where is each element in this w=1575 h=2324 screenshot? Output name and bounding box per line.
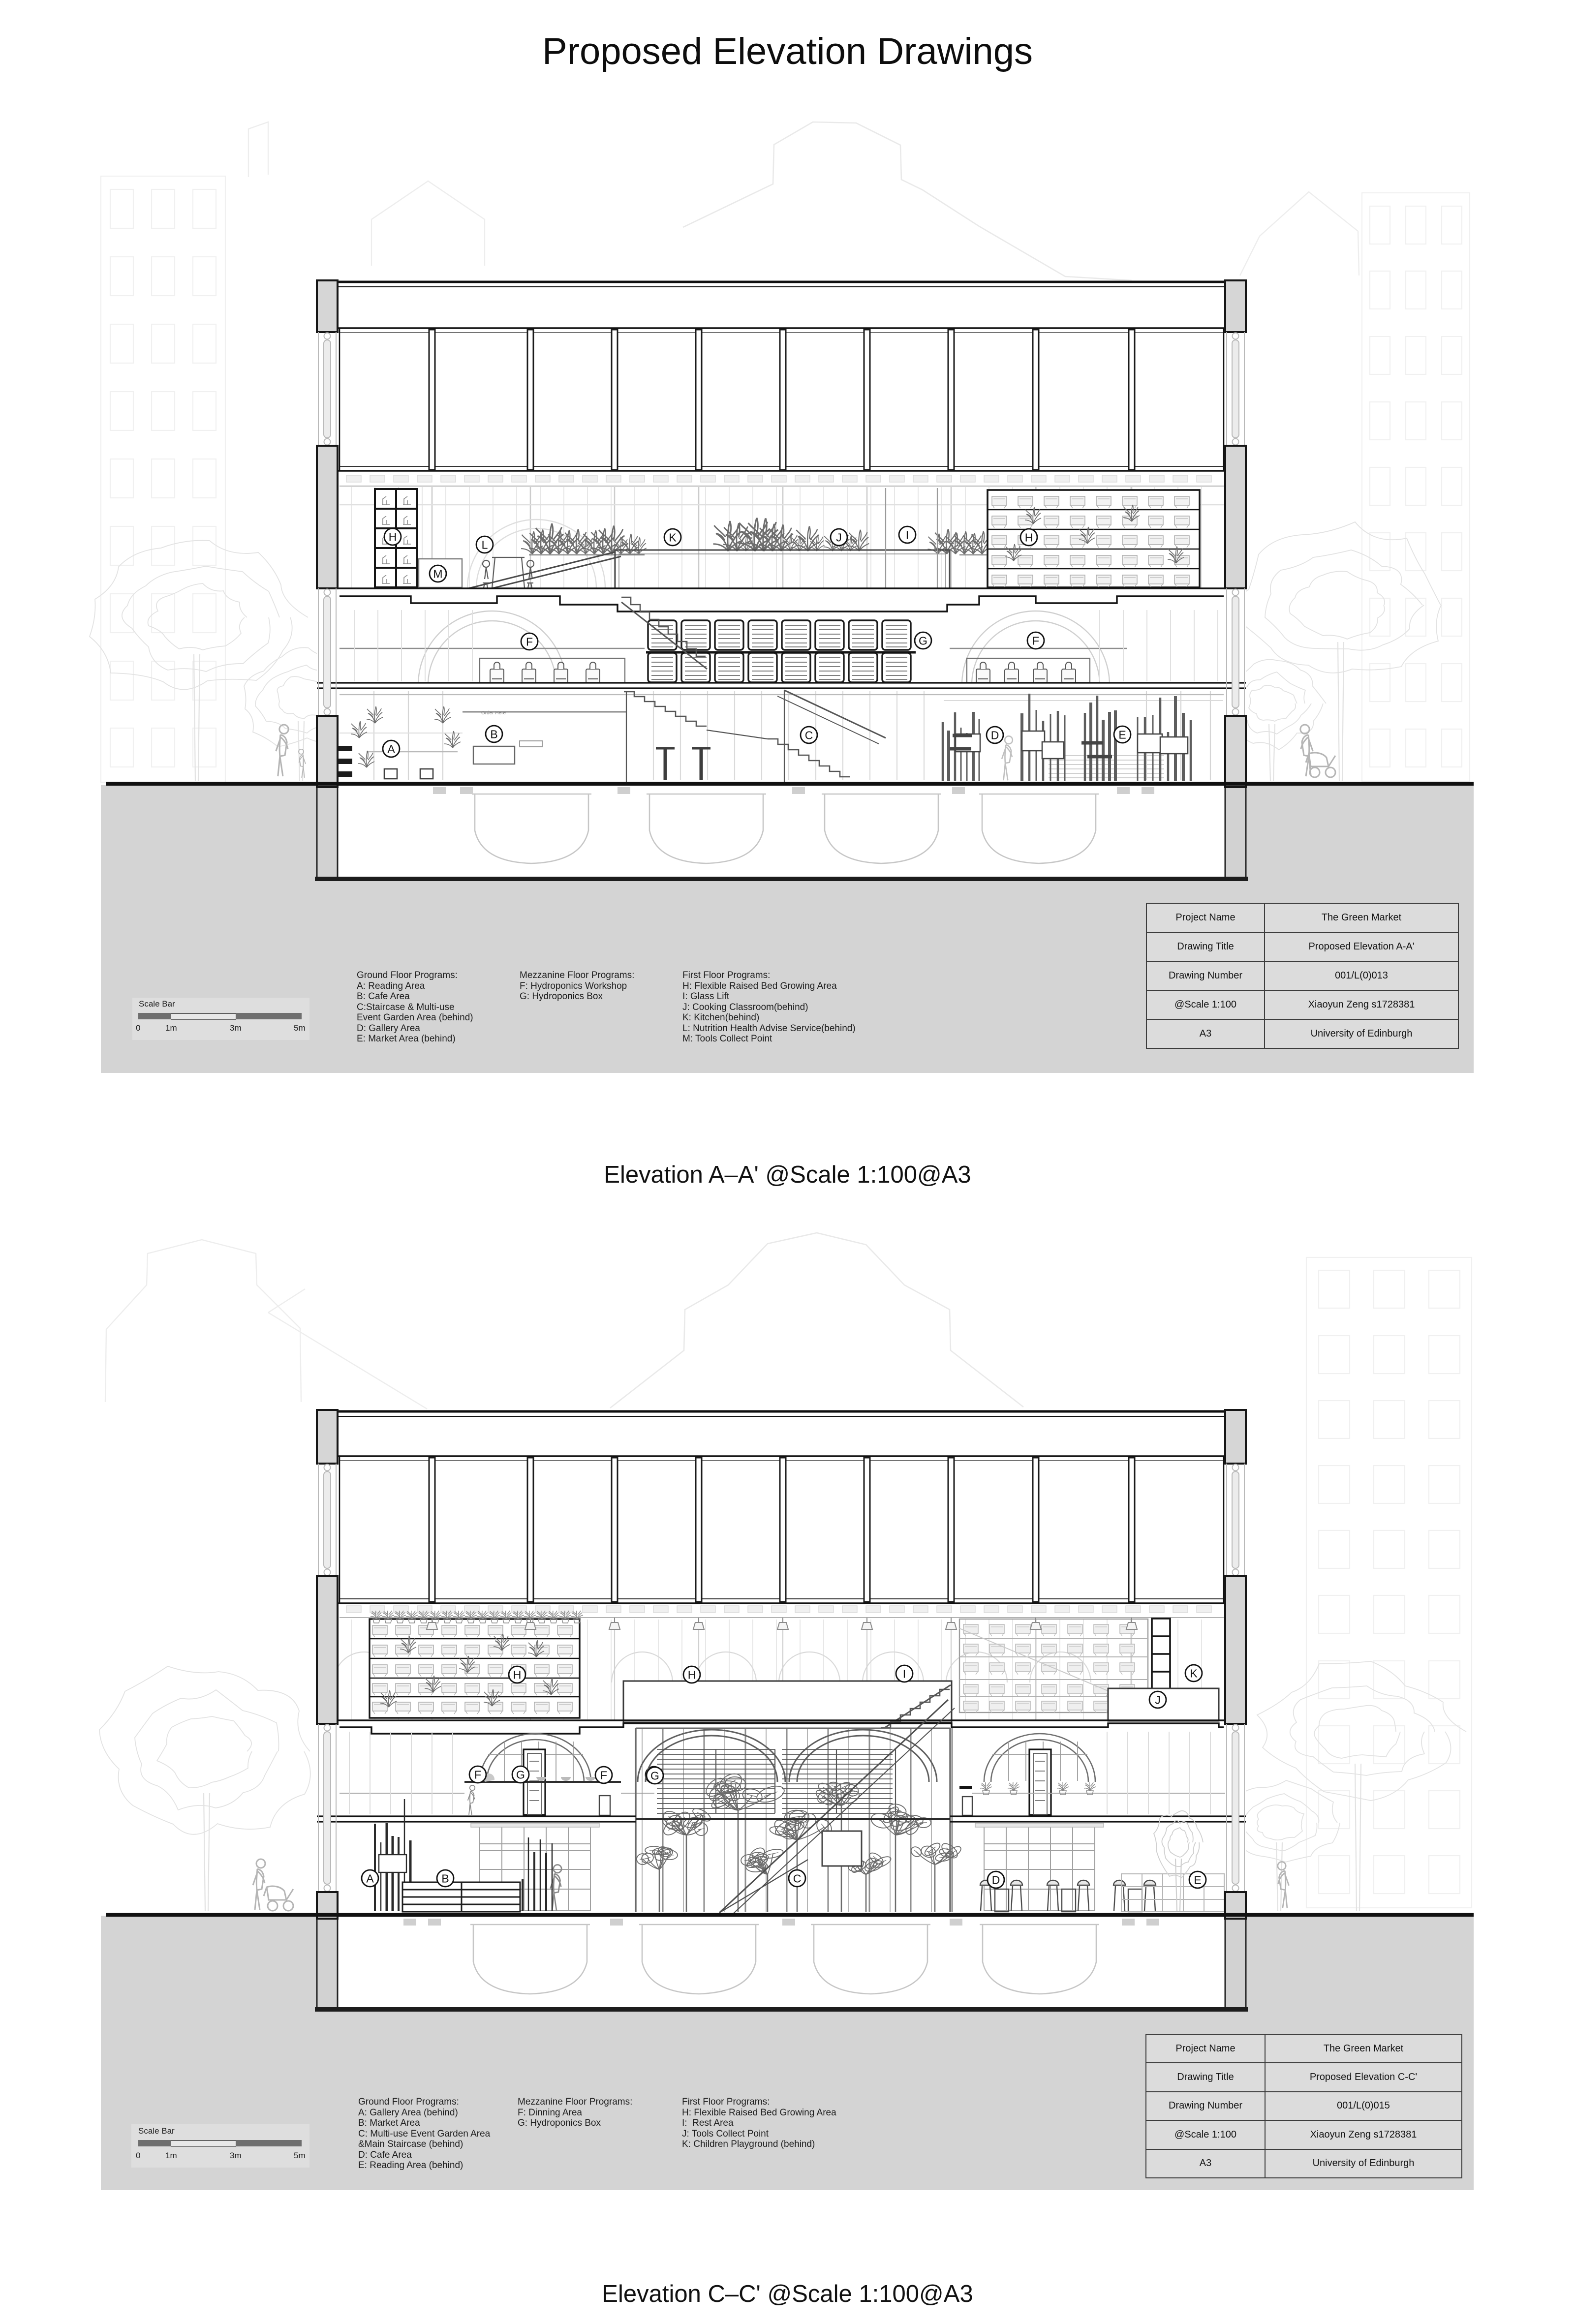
svg-text:J: J (1155, 1693, 1161, 1706)
svg-text:B: B (490, 728, 497, 740)
svg-text:B: B (441, 1872, 449, 1885)
svg-text:H: H (389, 530, 397, 543)
svg-text:D: D (992, 1873, 1000, 1886)
svg-text:K: K (1190, 1667, 1198, 1680)
svg-text:H: H (1025, 531, 1033, 544)
svg-text:L: L (482, 538, 488, 551)
svg-text:F: F (474, 1768, 481, 1781)
svg-text:J: J (836, 531, 842, 544)
svg-text:H: H (513, 1668, 522, 1681)
svg-text:F: F (600, 1769, 607, 1781)
svg-text:H: H (688, 1668, 696, 1681)
svg-text:E: E (1194, 1873, 1201, 1886)
svg-text:K: K (669, 531, 677, 544)
svg-text:I: I (906, 528, 909, 541)
svg-text:C: C (793, 1872, 802, 1885)
svg-text:I: I (903, 1667, 906, 1680)
svg-text:G: G (919, 634, 927, 647)
svg-text:D: D (991, 729, 999, 741)
svg-text:M: M (433, 567, 442, 580)
svg-text:A: A (387, 742, 395, 755)
svg-text:E: E (1118, 728, 1126, 741)
svg-text:A: A (366, 1872, 374, 1885)
svg-text:F: F (526, 635, 533, 648)
svg-text:G: G (516, 1768, 525, 1781)
svg-text:C: C (805, 729, 813, 741)
svg-text:G: G (650, 1769, 659, 1782)
svg-text:F: F (1032, 634, 1039, 647)
